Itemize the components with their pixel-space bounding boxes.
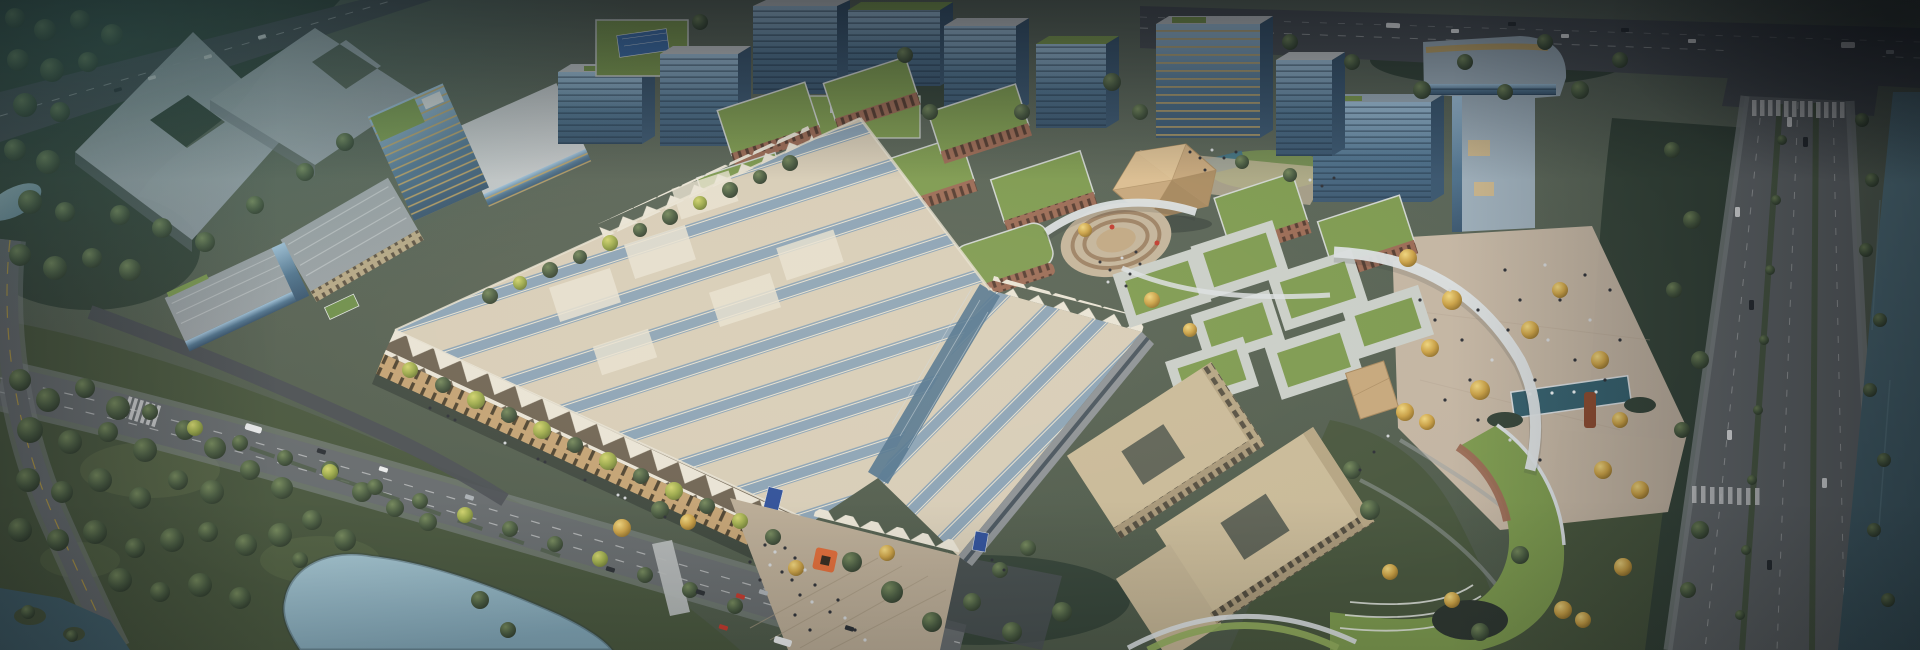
- architectural-rendering: [0, 0, 1920, 650]
- teal-haze: [0, 0, 760, 420]
- atmosphere-overlays: [0, 0, 1920, 650]
- vignette-bottom: [0, 500, 1920, 650]
- rendering-canvas: [0, 0, 1920, 650]
- vignette-top-right: [1350, 0, 1920, 340]
